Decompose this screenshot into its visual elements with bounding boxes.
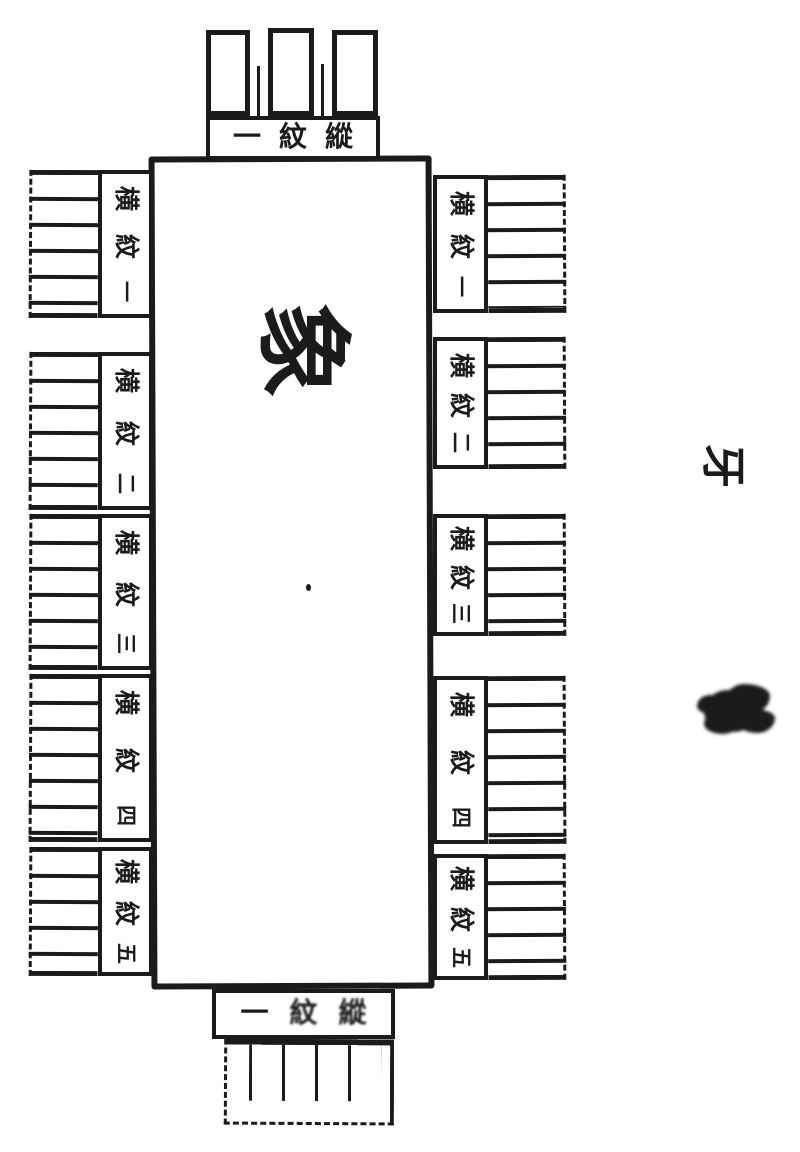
label-char: 紋 [448,233,473,258]
label-char: 三 [450,603,471,624]
left-label-1: 横 紋 一 [98,170,153,318]
label-char: 紋 [448,906,473,931]
label-char: 紋 [113,901,138,926]
label-char: 紋 [113,581,138,606]
hatch-ticks [249,1045,381,1102]
hatch-right-4 [488,676,567,844]
label-char: 四 [450,807,471,828]
label-char: 紋 [113,420,138,445]
folio-character: 牙 [700,444,744,488]
label-char: 五 [450,947,471,968]
label-char: 横 [113,368,138,393]
top-slat [332,30,378,116]
ink-smudge [704,690,760,732]
label-char: 紋 [289,1000,317,1028]
label-char: 二 [450,432,471,453]
hatch-right-3 [488,514,567,636]
scanned-page: 象 一 紋 縱 一 紋 縱 横 紋 一 横 紋 二 横 紋 三 [0,0,800,1152]
central-character: 象 [236,290,356,410]
label-char: 一 [233,124,261,152]
top-hatch [206,28,378,118]
label-char: 横 [113,186,138,211]
slat-tick [321,64,324,116]
label-char: 紋 [113,747,138,772]
right-label-4: 横 紋 四 [433,676,488,844]
hatch-left-3 [29,514,99,670]
label-char: 五 [115,943,136,964]
central-panel [149,156,435,990]
right-label-3: 横 紋 三 [433,514,488,636]
label-char: 二 [115,473,136,494]
left-label-4: 横 紋 四 [98,674,153,842]
label-char: 縱 [338,1000,366,1028]
label-char: 横 [113,859,138,884]
top-slat [268,28,314,116]
ink-dot [306,584,311,591]
right-label-2: 横 紋 二 [433,337,488,469]
hatch-left-1 [29,170,99,318]
label-char: 一 [240,1000,268,1028]
label-char: 横 [113,530,138,555]
left-label-5: 横 紋 五 [98,847,153,976]
label-char: 四 [115,805,136,826]
label-char: 紋 [113,233,138,258]
label-char: 三 [115,633,136,654]
right-label-5: 横 紋 五 [433,854,488,980]
left-label-3: 横 紋 三 [98,514,153,670]
label-char: 紋 [448,749,473,774]
hatch-right-1 [488,175,567,313]
hatch-right-2 [488,337,567,469]
label-char: 横 [448,191,473,216]
label-char: 横 [448,692,473,717]
label-char: 横 [448,353,473,378]
hatch-left-2 [29,352,99,510]
slat-tick [257,66,260,116]
label-char: 紋 [448,392,473,417]
label-char: 横 [113,690,138,715]
label-char: 横 [448,526,473,551]
top-cell-label: 一 紋 縱 [206,116,380,160]
hatch-right-5 [488,854,567,980]
hatch-left-4 [29,674,99,842]
hatch-left-5 [29,847,99,976]
label-char: 横 [448,866,473,891]
bottom-cell-label: 一 紋 縱 [212,989,395,1039]
right-label-1: 横 紋 一 [433,175,488,313]
label-char: 一 [450,276,471,297]
left-label-2: 横 紋 二 [98,352,153,510]
label-char: 縱 [325,124,353,152]
label-char: 紋 [279,124,307,152]
bottom-hatch [224,1039,394,1126]
top-slat [206,30,250,116]
label-char: 紋 [448,564,473,589]
label-char: 一 [115,281,136,302]
